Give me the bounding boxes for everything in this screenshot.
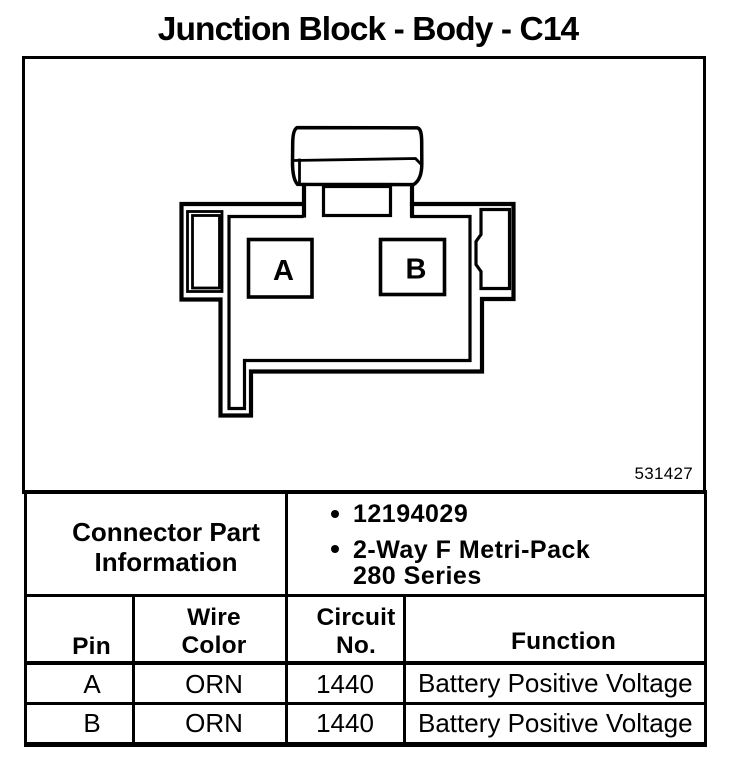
- svg-text:A: A: [273, 255, 294, 287]
- svg-text:B: B: [406, 254, 427, 286]
